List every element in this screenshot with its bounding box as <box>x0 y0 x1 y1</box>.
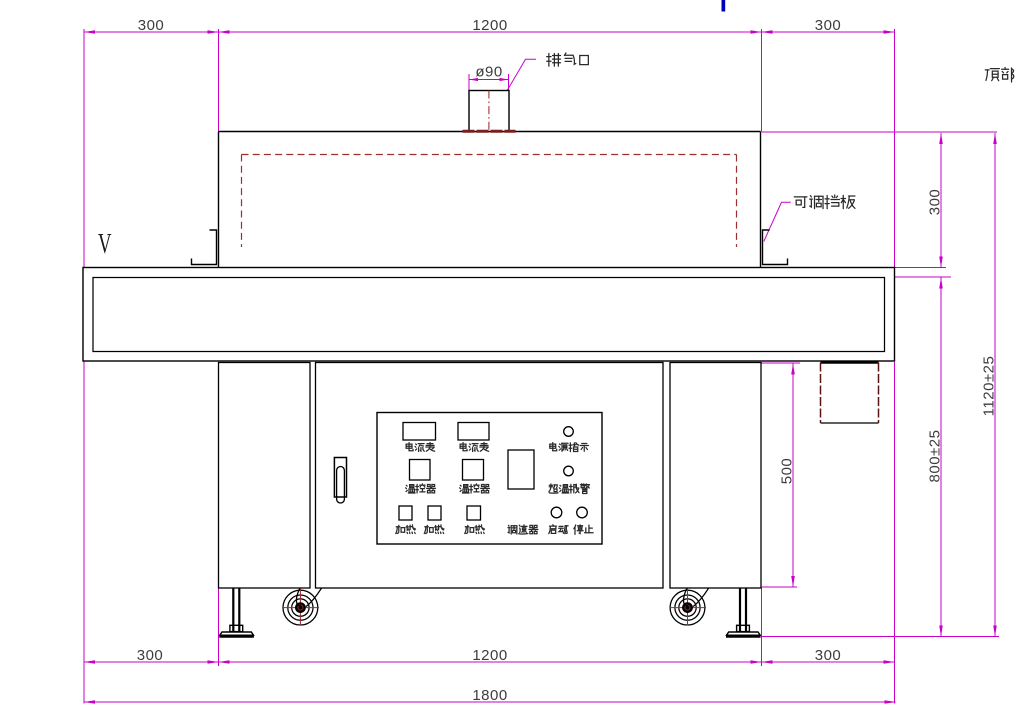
svg-text:1200: 1200 <box>472 647 507 664</box>
svg-text:300: 300 <box>138 17 165 34</box>
svg-text:1120±25: 1120±25 <box>981 356 998 417</box>
svg-text:ø90: ø90 <box>475 64 502 81</box>
svg-text:300: 300 <box>815 647 842 664</box>
svg-text:500: 500 <box>779 458 796 485</box>
svg-text:V: V <box>98 228 112 260</box>
svg-text:1200: 1200 <box>472 17 507 34</box>
svg-text:800±25: 800±25 <box>927 430 944 483</box>
svg-text:300: 300 <box>137 647 164 664</box>
svg-text:300: 300 <box>815 17 842 34</box>
svg-text:300: 300 <box>927 189 944 216</box>
svg-text:1800: 1800 <box>472 687 507 704</box>
